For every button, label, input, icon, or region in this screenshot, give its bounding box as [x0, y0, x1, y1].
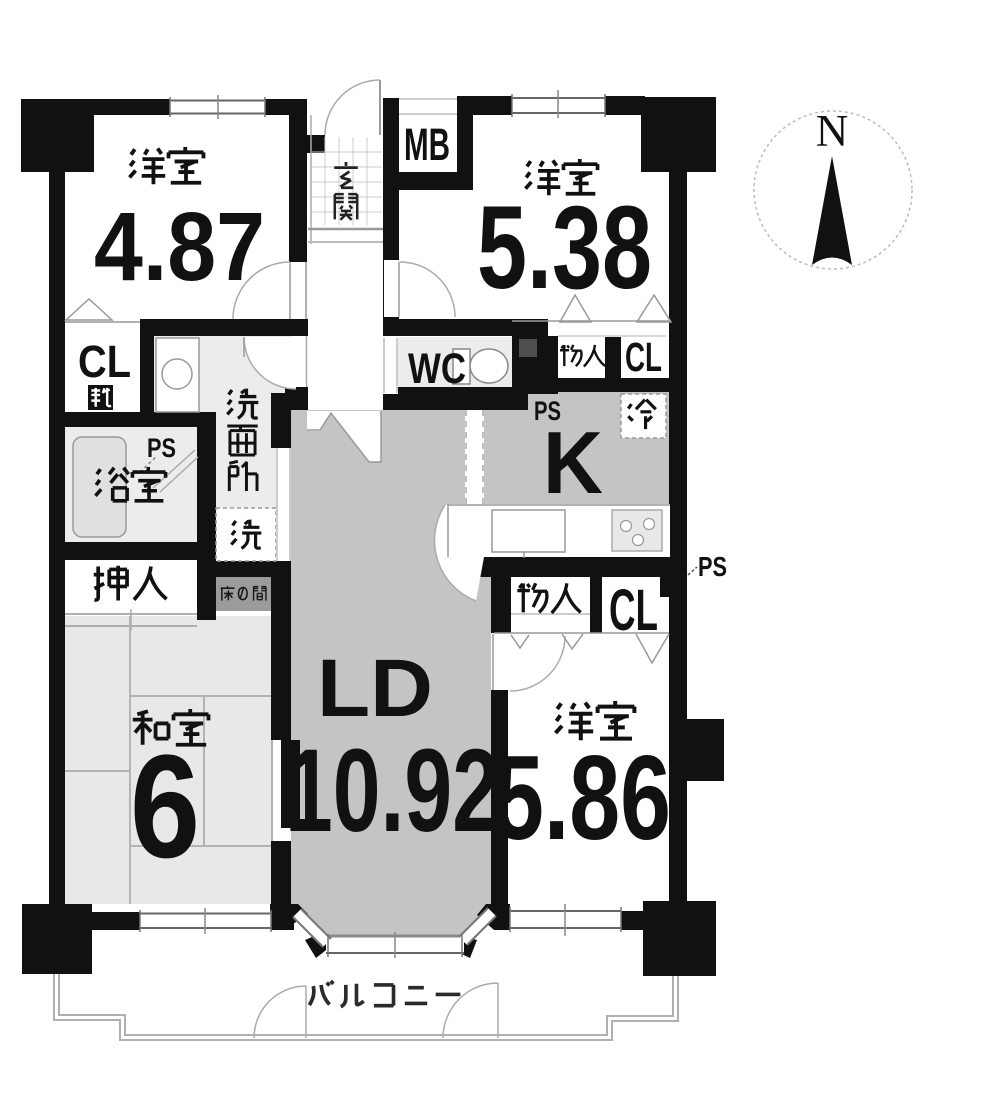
svg-text:6: 6 [130, 725, 200, 889]
svg-text:10.92: 10.92 [285, 725, 500, 857]
svg-text:PS: PS [147, 433, 176, 463]
svg-text:CL: CL [625, 334, 662, 380]
svg-text:PS: PS [534, 396, 561, 426]
svg-text:CL: CL [609, 578, 658, 643]
svg-text:WC: WC [408, 345, 466, 393]
svg-text:CL: CL [78, 336, 131, 387]
svg-text:MB: MB [404, 119, 450, 170]
svg-text:5.38: 5.38 [477, 182, 652, 314]
svg-text:LD: LD [317, 643, 433, 734]
svg-text:K: K [543, 413, 603, 512]
svg-text:PS: PS [698, 551, 727, 582]
svg-text:4.87: 4.87 [94, 192, 265, 301]
svg-text:N: N [816, 106, 849, 156]
svg-text:5.86: 5.86 [493, 731, 671, 865]
